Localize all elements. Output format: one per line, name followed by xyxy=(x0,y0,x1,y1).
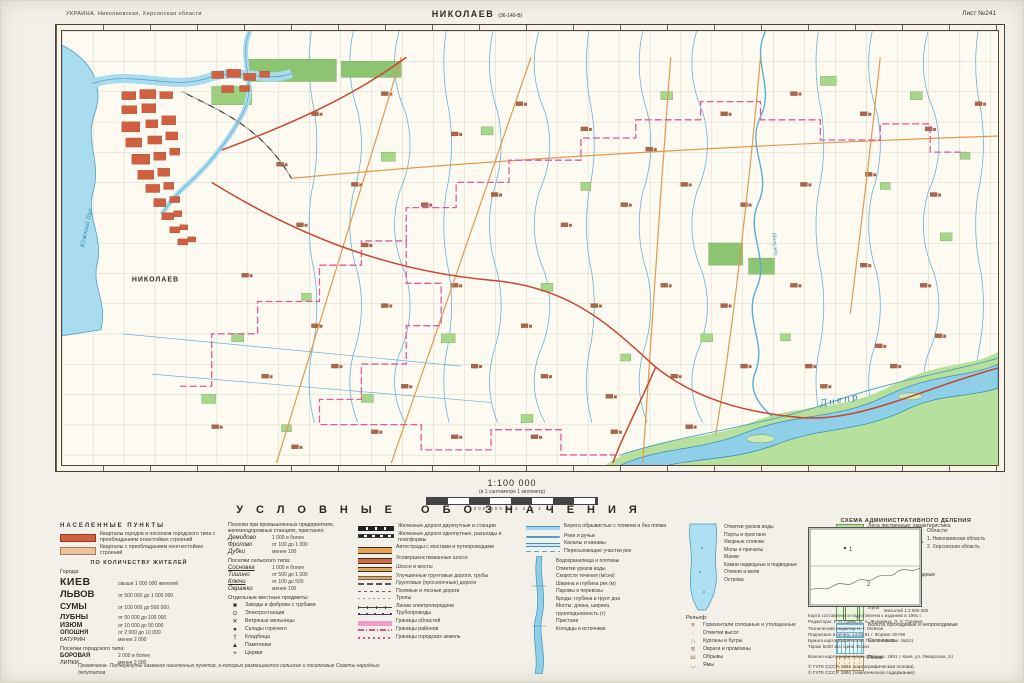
relief-icon: ∩ xyxy=(686,639,700,646)
hydro-callout: Водохранилища и плотины xyxy=(556,558,620,566)
legend-label: Кварталы с преобладанием неогнестойких с… xyxy=(100,545,218,557)
rural-row: Тишино от 500 до 1 000 xyxy=(228,572,348,578)
hydro-callout: Паромы и перевозы xyxy=(556,588,620,596)
settlement-name: Дубки xyxy=(228,549,272,555)
credits-block: Карта составлена и подготовлена к издани… xyxy=(808,613,1004,678)
object-label: Заводы и фабрики с трубами xyxy=(245,603,316,609)
town-size: от 100 000 до 500 000 xyxy=(118,605,169,611)
settlement-size: менее 100 xyxy=(272,586,296,592)
hydro-label: Реки и ручьи xyxy=(564,534,595,540)
industrial-row: Фролово от 100 до 1 000 xyxy=(228,542,348,548)
hydro-callout: Броды: глубина и грунт дна xyxy=(556,596,620,604)
industrial-list: Демидово 1 000 и более Фролово от 100 до… xyxy=(228,535,348,555)
reservoir-figure xyxy=(686,522,720,612)
town-row: КИЕВ свыше 1 000 000 жителей xyxy=(60,576,218,588)
rural-heading: Поселки сельского типа: xyxy=(228,558,348,564)
settlement-name: Овражки xyxy=(228,586,272,592)
schema-list-heading: Области: xyxy=(927,527,985,535)
schema-area-item: 2. Херсонская область xyxy=(927,543,985,551)
relief-label: Горизонтали сплошные и утолщенные xyxy=(703,623,796,629)
road-symbol xyxy=(358,598,392,599)
relief-label: Овраги и промоины xyxy=(703,647,751,653)
objects-list: ■ Заводы и фабрики с трубами ⊙ Электрост… xyxy=(228,603,348,658)
settlement-name: Демидово xyxy=(228,535,272,541)
schema-title: СХЕМА АДМИНИСТРАТИВНОГО ДЕЛЕНИЯ xyxy=(808,518,1004,525)
settlement-size: менее 100 xyxy=(272,549,296,555)
water-callouts: Отметки урезов водыПорты и пристаниЯкорн… xyxy=(724,524,797,612)
schema-areas: 1. Николаевская область2. Херсонская обл… xyxy=(927,535,985,551)
town-size: от 10 000 до 50 000 xyxy=(118,623,163,629)
road-row: Усовершенствованные шоссе xyxy=(358,556,516,564)
road-symbol xyxy=(358,534,394,538)
town-size: менее 2 000 xyxy=(118,637,146,643)
settlement-name: Тишино xyxy=(228,572,272,578)
road-row: Линии электропередачи xyxy=(358,604,516,610)
legend-col-water: Отметки урезов водыПорты и пристаниЯкорн… xyxy=(686,522,826,674)
town-size: свыше 1 000 000 жителей xyxy=(118,581,178,587)
rural-row: Сосновка 1 000 и более xyxy=(228,565,348,571)
city-label: НИКОЛАЕВ xyxy=(132,276,179,283)
pgt-heading: Поселки городского типа: xyxy=(60,646,218,652)
rural-row: Ключи от 100 до 500 xyxy=(228,579,348,585)
sheet-title-note: (36-140-В) xyxy=(498,13,522,19)
legend-symbol xyxy=(60,547,96,555)
admin-schema: СХЕМА АДМИНИСТРАТИВНОГО ДЕЛЕНИЯ 1 2 Обла… xyxy=(808,518,1004,613)
hydro-symbol xyxy=(526,543,560,547)
road-label: Тропы xyxy=(396,596,411,602)
hydro-row: Каналы и канавы xyxy=(526,541,676,547)
settlement-name: Фролово xyxy=(228,542,272,548)
legend-row: Кварталы с преобладанием неогнестойких с… xyxy=(60,545,218,557)
relief-icon: ≋ xyxy=(686,647,700,654)
industrial-row: Дубки менее 100 xyxy=(228,549,348,555)
relief-row: ◡ Ямы xyxy=(686,663,826,670)
town-row: ЛУБНЫ от 50 000 до 100 000 xyxy=(60,612,218,621)
relief-icon: ш xyxy=(686,655,700,662)
legend-col-hydro: Берега обрывистые с пляжем и без пляжа Р… xyxy=(526,522,676,674)
relief-icon: · xyxy=(686,631,700,638)
settlement-block-list: Кварталы городов и поселков городского т… xyxy=(60,532,218,557)
hydro-row: Реки и ручьи xyxy=(526,534,676,540)
legend-symbol xyxy=(60,534,96,542)
settlement-name: Сосновка xyxy=(228,565,272,571)
water-callout: Камни надводные и подводные xyxy=(724,562,797,570)
pgt-row: БОРОВАЯ 2 000 и более xyxy=(60,653,218,659)
rural-row: Овражки менее 100 xyxy=(228,586,348,592)
road-row: Железные дороги двухпутные и станции xyxy=(358,524,516,531)
hydro-symbol xyxy=(526,526,560,533)
rural-list: Сосновка 1 000 и более Тишино от 500 до … xyxy=(228,565,348,592)
hydro-callout: Ширина и глубина рек (м) xyxy=(556,581,620,589)
object-label: Ветряные мельницы xyxy=(245,619,295,625)
river-figure-block: Водохранилища и плотиныОтметки урезов во… xyxy=(526,556,676,674)
industrial-row: Демидово 1 000 и более xyxy=(228,535,348,541)
object-icon: ■ xyxy=(228,603,242,610)
scale-ratio: 1:100 000 xyxy=(0,478,1024,488)
settlement-size: от 500 до 1 000 xyxy=(272,572,308,578)
settlement-size: 1 000 и более xyxy=(272,535,304,541)
object-label: Склады горючего xyxy=(245,627,287,633)
road-label: Границы районов xyxy=(396,627,438,633)
road-label: Усовершенствованные шоссе xyxy=(396,556,468,562)
scale-note: (в 1 сантиметре 1 километр) xyxy=(0,489,1024,495)
relief-label: Обрывы xyxy=(703,655,723,661)
object-label: Кладбища xyxy=(245,635,270,641)
object-icon: ▲ xyxy=(228,643,242,650)
settlement-size: от 100 до 1 000 xyxy=(272,542,308,548)
sheet-number: Лист №241 xyxy=(962,10,996,17)
by-population-heading: ПО КОЛИЧЕСТВУ ЖИТЕЛЕЙ xyxy=(60,560,218,566)
road-label: Улучшенные грунтовые дороги, трубы xyxy=(396,574,488,580)
hydro-list: Берега обрывистые с пляжем и без пляжа Р… xyxy=(526,524,676,555)
town-name: ИЗЮМ xyxy=(60,622,118,629)
object-row: ⊙ Электростанции xyxy=(228,611,348,618)
pgt-size: 2 000 и более xyxy=(118,653,150,659)
object-row: ● Склады горючего xyxy=(228,627,348,634)
schema-area-item: 1. Николаевская область xyxy=(927,535,985,543)
water-callout: Якорные стоянки xyxy=(724,539,797,547)
towns-list: КИЕВ свыше 1 000 000 жителей ЛЬВОВ от 50… xyxy=(60,576,218,643)
water-callout: Острова xyxy=(724,577,797,585)
relief-row: · Отметки высот xyxy=(686,631,826,638)
legend-col-roads: Железные дороги двухпутные и станции Жел… xyxy=(358,522,516,674)
object-icon: ● xyxy=(228,627,242,634)
road-label: Линии электропередачи xyxy=(396,604,454,610)
hydro-callout: грузоподъемность (т) xyxy=(556,611,620,619)
road-symbol xyxy=(358,591,392,592)
relief-label: Курганы и бугры xyxy=(703,639,742,645)
legend-col-settlements: НАСЕЛЕННЫЕ ПУНКТЫ Кварталы городов и пос… xyxy=(60,522,218,674)
water-callout: Маяки xyxy=(724,554,797,562)
object-row: ▲ Памятники xyxy=(228,643,348,650)
town-name: ОПОШНЯ xyxy=(60,630,118,636)
settlement-size: 1 000 и более xyxy=(272,565,304,571)
road-label: Автострады с мостами и путепроводами xyxy=(396,545,494,551)
town-name: ЛУБНЫ xyxy=(60,612,118,621)
legend-label: Кварталы городов и поселков городского т… xyxy=(100,532,218,544)
road-row: Границы городских земель xyxy=(358,635,516,641)
relief-icon: ◡ xyxy=(686,663,700,670)
road-symbol xyxy=(358,547,392,554)
town-name: СУМЫ xyxy=(60,601,118,611)
relief-icon: ≡ xyxy=(686,623,700,630)
road-label: Полевые и лесные дороги xyxy=(396,589,459,595)
object-label: Церкви xyxy=(245,651,263,657)
legend-note: Примечание. Подчеркнуты названия населен… xyxy=(78,663,408,676)
road-row: Трубопроводы xyxy=(358,611,516,617)
road-label: Шоссе и мосты xyxy=(396,565,433,571)
industrial-heading: Поселки при промышленных предприятиях, ж… xyxy=(228,522,348,534)
map-frame: НИКОЛАЕВ Днепр Южный Буг Ингулец xyxy=(55,24,1005,472)
relief-heading: Рельеф: xyxy=(686,615,826,621)
road-row: Тропы xyxy=(358,596,516,602)
object-icon: + xyxy=(228,651,242,658)
town-name: БАТУРИН xyxy=(60,637,118,643)
town-row: ИЗЮМ от 10 000 до 50 000 xyxy=(60,622,218,629)
river-figure xyxy=(526,556,552,674)
object-icon: ✕ xyxy=(228,619,242,626)
road-row: Улучшенные грунтовые дороги, трубы xyxy=(358,574,516,580)
hydro-callout: Пристани xyxy=(556,618,620,626)
hydro-row: Пересыхающие участки рек xyxy=(526,549,676,555)
hydro-symbol xyxy=(526,536,560,538)
road-label: Трубопроводы xyxy=(396,611,431,617)
credits-lines: Карта составлена и подготовлена к издани… xyxy=(808,613,1004,650)
object-row: † Кладбища xyxy=(228,635,348,642)
town-name: ЛЬВОВ xyxy=(60,589,118,600)
settlements-heading: НАСЕЛЕННЫЕ ПУНКТЫ xyxy=(60,523,218,529)
hydro-label: Берега обрывистые с пляжем и без пляжа xyxy=(564,524,666,530)
town-size: от 2 000 до 10 000 xyxy=(118,630,161,636)
settlement-name: Ключи xyxy=(228,579,272,585)
relief-row: ≋ Овраги и промоины xyxy=(686,647,826,654)
town-row: ОПОШНЯ от 2 000 до 10 000 xyxy=(60,630,218,636)
hydro-label: Каналы и канавы xyxy=(564,541,606,547)
water-callout: Порты и пристани xyxy=(724,532,797,540)
hydro-callout: Колодцы и источники xyxy=(556,626,620,634)
town-size: от 500 000 до 1 000 000 xyxy=(118,593,173,599)
town-row: ЛЬВОВ от 500 000 до 1 000 000 xyxy=(60,589,218,600)
road-symbol xyxy=(358,583,392,585)
road-row: Шоссе и мосты xyxy=(358,565,516,572)
map-canvas: НИКОЛАЕВ Днепр Южный Буг Ингулец xyxy=(61,30,999,466)
object-icon: ⊙ xyxy=(228,611,242,618)
road-symbol xyxy=(358,613,392,615)
relief-label: Отметки высот xyxy=(703,631,739,637)
pgt-name: БОРОВАЯ xyxy=(60,653,118,659)
settlement-size: от 100 до 500 xyxy=(272,579,304,585)
road-row: Грунтовые (проселочные) дороги xyxy=(358,581,516,587)
road-label: Железные дороги однопутные, разъезды и п… xyxy=(398,532,516,544)
water-callout: Отметки урезов воды xyxy=(724,524,797,532)
objects-heading: Отдельные местные предметы: xyxy=(228,595,348,601)
road-row: Полевые и лесные дороги xyxy=(358,589,516,595)
road-symbol xyxy=(358,558,392,564)
road-symbol xyxy=(358,621,392,626)
road-symbol xyxy=(358,567,392,572)
road-symbol xyxy=(358,576,392,580)
town-name: КИЕВ xyxy=(60,576,118,588)
road-label: Грунтовые (проселочные) дороги xyxy=(396,581,476,587)
road-label: Границы областей xyxy=(396,619,440,625)
hydro-callout: Отметки урезов воды xyxy=(556,566,620,574)
water-callout: Отмели и мели xyxy=(724,569,797,577)
hydro-callout: Скорости течения (м/сек) xyxy=(556,573,620,581)
object-icon: † xyxy=(228,635,242,642)
road-symbol xyxy=(358,629,392,631)
object-label: Памятники xyxy=(245,643,271,649)
legend-col-rural: Поселки при промышленных предприятиях, ж… xyxy=(228,522,348,674)
legend-row: Кварталы городов и поселков городского т… xyxy=(60,532,218,544)
sheet-title-text: НИКОЛАЕВ xyxy=(432,9,495,19)
roads-list: Железные дороги двухпутные и станции Жел… xyxy=(358,524,516,641)
town-row: БАТУРИН менее 2 000 xyxy=(60,637,218,643)
road-symbol xyxy=(358,637,392,639)
reservoir-figure-block: Отметки урезов водыПорты и пристаниЯкорн… xyxy=(686,522,826,612)
road-row: Железные дороги однопутные, разъезды и п… xyxy=(358,532,516,544)
towns-heading: Города: xyxy=(60,569,218,575)
schema-map: 1 2 xyxy=(808,527,922,607)
road-row: Границы районов xyxy=(358,627,516,633)
relief-label: Ямы xyxy=(703,663,714,669)
road-symbol xyxy=(358,606,392,609)
legend: УСЛОВНЫЕ ОБОЗНАЧЕНИЯ НАСЕЛЕННЫЕ ПУНКТЫ К… xyxy=(58,504,1006,678)
object-row: + Церкви xyxy=(228,651,348,658)
town-size: от 50 000 до 100 000 xyxy=(118,615,166,621)
hydro-symbol xyxy=(526,551,560,553)
legend-columns: НАСЕЛЕННЫЕ ПУНКТЫ Кварталы городов и пос… xyxy=(60,522,830,674)
water-callout: Молы и причалы xyxy=(724,547,797,555)
town-row: СУМЫ от 100 000 до 500 000 xyxy=(60,601,218,611)
hydro-callout: Мосты: длина, ширина, xyxy=(556,603,620,611)
object-label: Электростанции xyxy=(245,611,284,617)
relief-row: ≡ Горизонтали сплошные и утолщенные xyxy=(686,623,826,630)
road-symbol xyxy=(358,526,394,531)
road-label: Железные дороги двухпутные и станции xyxy=(398,524,496,530)
road-label: Границы городских земель xyxy=(396,635,461,641)
hydro-callouts: Водохранилища и плотиныОтметки урезов во… xyxy=(556,558,620,674)
legend-title: УСЛОВНЫЕ ОБОЗНАЧЕНИЯ xyxy=(58,504,828,516)
object-row: ✕ Ветряные мельницы xyxy=(228,619,348,626)
object-row: ■ Заводы и фабрики с трубами xyxy=(228,603,348,610)
hydro-row: Берега обрывистые с пляжем и без пляжа xyxy=(526,524,676,533)
copyright-lines: © ГУГК СССР, 1991 (картографическая осно… xyxy=(808,665,1004,678)
sheet-title: НИКОЛАЕВ (36-140-В) xyxy=(0,9,954,19)
schema-list: Области: 1. Николаевская область2. Херсо… xyxy=(927,527,985,607)
relief-list: ≡ Горизонтали сплошные и утолщенные · От… xyxy=(686,623,826,670)
topo-map: НИКОЛАЕВ Днепр Южный Буг Ингулец xyxy=(62,31,998,465)
scanned-map-sheet: { "header": { "series_title": "УКРАИНА. … xyxy=(0,0,1024,683)
relief-row: ∩ Курганы и бугры xyxy=(686,639,826,646)
hydro-label: Пересыхающие участки рек xyxy=(564,549,631,555)
road-row: Автострады с мостами и путепроводами xyxy=(358,545,516,554)
road-row: Границы областей xyxy=(358,619,516,626)
copyright-line: © ГУГК СССР, 1991 (тематическое содержан… xyxy=(808,671,1004,678)
relief-row: ш Обрывы xyxy=(686,655,826,662)
